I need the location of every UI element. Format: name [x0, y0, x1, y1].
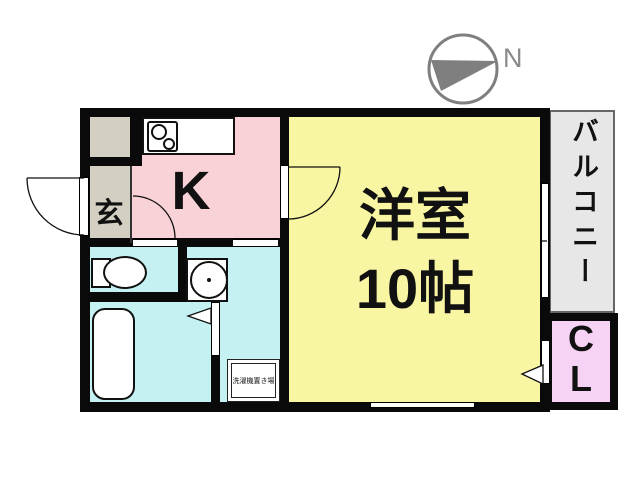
kitchen-label: K — [158, 160, 224, 222]
bathtub-icon — [92, 308, 135, 400]
floor-plan: 洗濯機置き場 N 玄 K 洋室 10帖 バルコニー C L — [0, 0, 640, 480]
closet-label-line1: C — [552, 319, 610, 359]
western-room-label-line1: 洋室 — [304, 179, 526, 252]
bottom-window — [370, 402, 475, 408]
balcony-label: バルコニー — [566, 117, 600, 309]
balcony-window — [541, 183, 549, 298]
stove-burner-icon — [151, 124, 167, 140]
western-room-label-line2: 10帖 — [304, 252, 526, 325]
wall-shoebox-bottom — [80, 157, 142, 166]
kitchen-mainroom-door — [280, 165, 289, 219]
entrance-label: 玄 — [85, 190, 133, 232]
wall-bottom — [80, 402, 550, 412]
closet-door — [541, 340, 550, 384]
toilet-door — [133, 238, 177, 247]
washroom-opening — [233, 238, 278, 247]
closet-label-line2: L — [552, 359, 610, 399]
compass-north-label: N — [503, 43, 523, 74]
wall-left — [80, 108, 90, 412]
stove-burner-icon — [163, 138, 175, 150]
washbasin-drain-icon — [207, 278, 211, 282]
washing-machine-space: 洗濯機置き場 — [227, 359, 280, 402]
washing-machine-label: 洗濯機置き場 — [231, 363, 276, 398]
wall-bath-right — [211, 356, 220, 407]
bathroom-door — [211, 302, 220, 356]
toilet-bowl-icon — [103, 256, 147, 289]
closet-label: C L — [552, 319, 610, 399]
wall-kitchen-mainroom — [280, 112, 289, 407]
western-room-label: 洋室 10帖 — [304, 179, 526, 325]
